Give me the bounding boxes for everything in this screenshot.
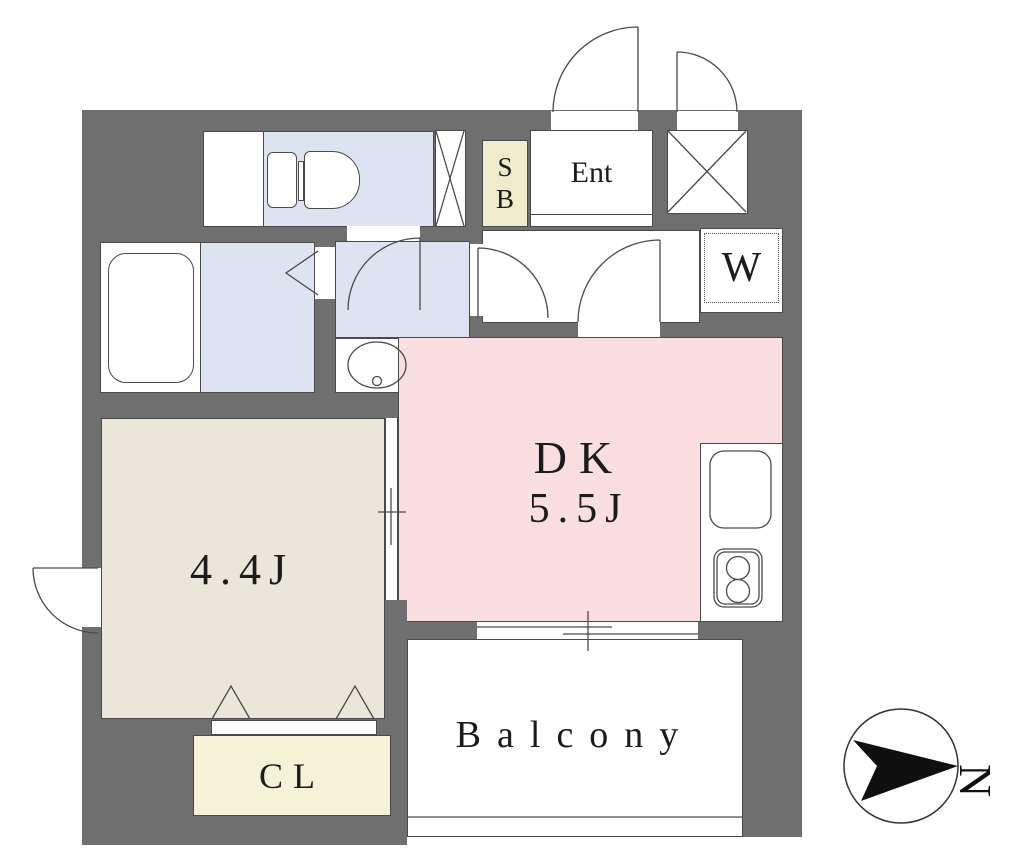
toilet-door-opening xyxy=(347,226,420,242)
kitchen-counter xyxy=(700,443,783,622)
dk-label-block: DK 5.5J xyxy=(429,428,729,538)
bathroom xyxy=(100,242,315,393)
dk-size-label: 5.5J xyxy=(529,485,630,533)
room-size-label: 4.4J xyxy=(190,544,294,595)
dk-door-opening xyxy=(578,322,660,338)
washer-outline: W xyxy=(704,233,779,303)
pipe-space-large xyxy=(667,130,748,214)
closet-label: CL xyxy=(259,755,325,797)
compass-circle xyxy=(844,709,958,823)
bathtub-section xyxy=(101,243,201,392)
balcony: Balcony xyxy=(407,639,743,837)
hallway xyxy=(482,230,700,323)
washroom xyxy=(335,241,470,338)
closet-opening xyxy=(211,720,377,735)
shoe-box-label-line1: S xyxy=(497,152,512,183)
room-size-label-wrap: 4.4J xyxy=(142,529,342,609)
compass-north-label: N xyxy=(950,764,1001,797)
entrance-label: Ent xyxy=(571,156,613,190)
closet-label-wrap: CL xyxy=(194,736,390,815)
pipe-space-small xyxy=(435,130,466,227)
toilet-entry-section xyxy=(204,132,264,226)
entrance-step xyxy=(530,214,653,227)
balcony-window-opening xyxy=(477,622,698,639)
balcony-label: Balcony xyxy=(456,713,695,757)
entry-door-opening-1 xyxy=(551,111,638,130)
shoe-box-label-line2: B xyxy=(496,184,514,215)
bath-door-opening xyxy=(315,247,335,299)
toilet-bowl xyxy=(304,151,360,209)
dk-name-label: DK xyxy=(534,432,624,485)
compass: N xyxy=(844,709,1001,823)
closet: CL xyxy=(193,735,391,816)
toilet-room xyxy=(203,131,434,227)
shoe-box: S B xyxy=(482,140,528,227)
entry-door-opening-2 xyxy=(677,111,738,130)
sliding-partition xyxy=(385,418,398,600)
compass-arrow-icon xyxy=(853,740,958,801)
washer-room: W xyxy=(700,228,783,313)
room-door-opening xyxy=(82,568,101,627)
balcony-label-wrap: Balcony xyxy=(408,695,742,775)
entry-door-2-swing xyxy=(677,52,737,112)
bathtub xyxy=(108,253,194,383)
western-room: 4.4J xyxy=(101,418,385,719)
toilet-tank xyxy=(267,152,297,208)
floor-plan: S B Ent W DK 5.5J 4 xyxy=(0,0,1024,863)
entrance-room: Ent xyxy=(530,130,653,216)
washroom-door-opening xyxy=(468,244,483,316)
entry-door-1-swing xyxy=(553,27,638,112)
washer-label: W xyxy=(722,244,762,292)
